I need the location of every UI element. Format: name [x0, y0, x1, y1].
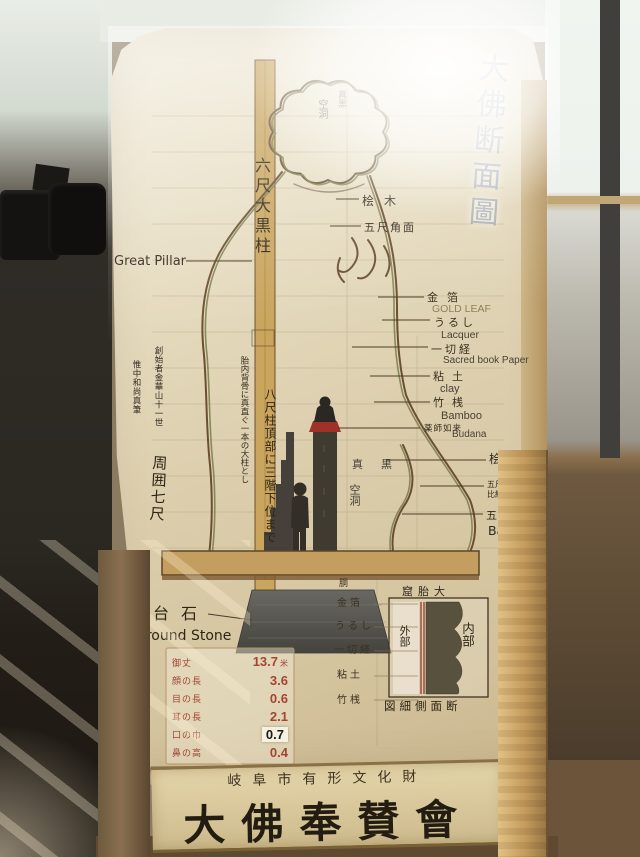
window-sill — [545, 196, 640, 204]
table-row: 目の長 0.6 — [172, 690, 288, 706]
detail-layers-header: 胴 — [339, 576, 348, 589]
table-row: 顔の長 3.6 — [172, 672, 288, 688]
measure-value: 2.1 — [270, 709, 288, 724]
measure-value-patched: 0.7 — [262, 727, 288, 742]
window-mullion — [600, 0, 620, 458]
association-name-line: 大佛奉賛會 — [183, 786, 474, 854]
material-sutra-en: Sacred book Paper — [443, 355, 529, 366]
measure-label: 目の長 — [172, 692, 202, 705]
table-row: 御丈 13.7米 — [172, 654, 288, 670]
pillar-note-main: 八尺柱頂部に三階下位まで — [262, 388, 279, 544]
ground-stone-jp-label: 台石 — [153, 600, 209, 624]
detail-layer-clay: 粘土 — [337, 666, 363, 681]
measurement-table: 御丈 13.7米 顔の長 3.6 目の長 0.6 耳の長 2.1 口の巾 0.7… — [172, 654, 288, 760]
founder-note-col1: 創始者金華山十一世 — [152, 346, 164, 427]
photo-of-daibutsu-cross-section-signboard: { "palette": { "board_cream": "#ddd2b8",… — [0, 0, 640, 857]
detail-layer-goldleaf: 金箔 — [337, 594, 363, 609]
stand-leg-right — [498, 450, 548, 857]
material-lacquer-en: Lacquer — [441, 329, 479, 341]
detail-box-inner-label: 内部 — [458, 622, 477, 647]
detail-layer-lacquer: うるし — [335, 617, 374, 632]
spotlight-fixture-right — [48, 183, 106, 255]
measure-value: 0.6 — [270, 691, 288, 706]
detail-layer-sutra: 一切経 — [334, 641, 373, 656]
table-row: 耳の長 2.1 — [172, 708, 288, 724]
founder-note-col2: 惟中和尚真筆 — [130, 360, 142, 414]
material-bamboo-jp: 竹桟 — [433, 394, 471, 410]
head-cavity-dark-label: 真黒 — [335, 90, 348, 108]
chest-cavity-hollow-label: 空洞 — [346, 484, 362, 506]
detail-layer-bamboo: 竹桟 — [337, 691, 363, 706]
measure-value: 13.7 — [253, 654, 278, 669]
measure-value: 0.4 — [270, 745, 288, 760]
window-right — [545, 0, 640, 857]
detail-box-title: 窟胎大 — [402, 583, 450, 599]
material-clay-jp: 粘土 — [433, 368, 471, 384]
measure-label: 口の巾 — [172, 728, 202, 741]
chest-cavity-dark-label: 真黒 — [352, 456, 410, 472]
measure-unit: 米 — [280, 659, 288, 668]
signboard-side-edge — [521, 80, 547, 472]
material-buddha-en: Budana — [452, 429, 486, 440]
material-bamboo-en: Bamboo — [441, 410, 482, 422]
circumference-label: 周囲七尺 — [146, 454, 171, 523]
measure-label: 耳の長 — [172, 710, 202, 723]
detail-box-caption: 図細側面断 — [384, 698, 462, 714]
great-pillar-en-label: Great Pillar — [114, 254, 186, 269]
pillar-note-side: 胎内背骨に真直ぐ一本の大柱とし — [238, 356, 250, 484]
stand-leg-left — [98, 550, 150, 857]
table-row: 鼻の高 0.4 — [172, 744, 288, 760]
great-pillar-jp-label: 六尺大黒柱 — [249, 157, 273, 257]
detail-box-outer-label: 外部 — [396, 625, 412, 647]
material-lacquer-jp: うるし — [434, 314, 476, 330]
upper-right-square-label: 五尺角面 — [364, 219, 416, 235]
measure-value: 3.6 — [270, 673, 288, 688]
measure-label: 御丈 — [172, 656, 192, 669]
measure-label: 鼻の高 — [172, 746, 202, 759]
upper-right-wood-label: 桧木 — [362, 192, 406, 209]
table-row: 口の巾 0.7 — [172, 726, 288, 742]
bottom-name-panel: 岐阜市有形文化財 大佛奉賛會 — [151, 759, 505, 853]
dark-wall-left — [0, 0, 112, 857]
head-cavity-hollow-label: 空洞 — [314, 99, 329, 119]
measure-label: 顔の長 — [172, 674, 202, 687]
